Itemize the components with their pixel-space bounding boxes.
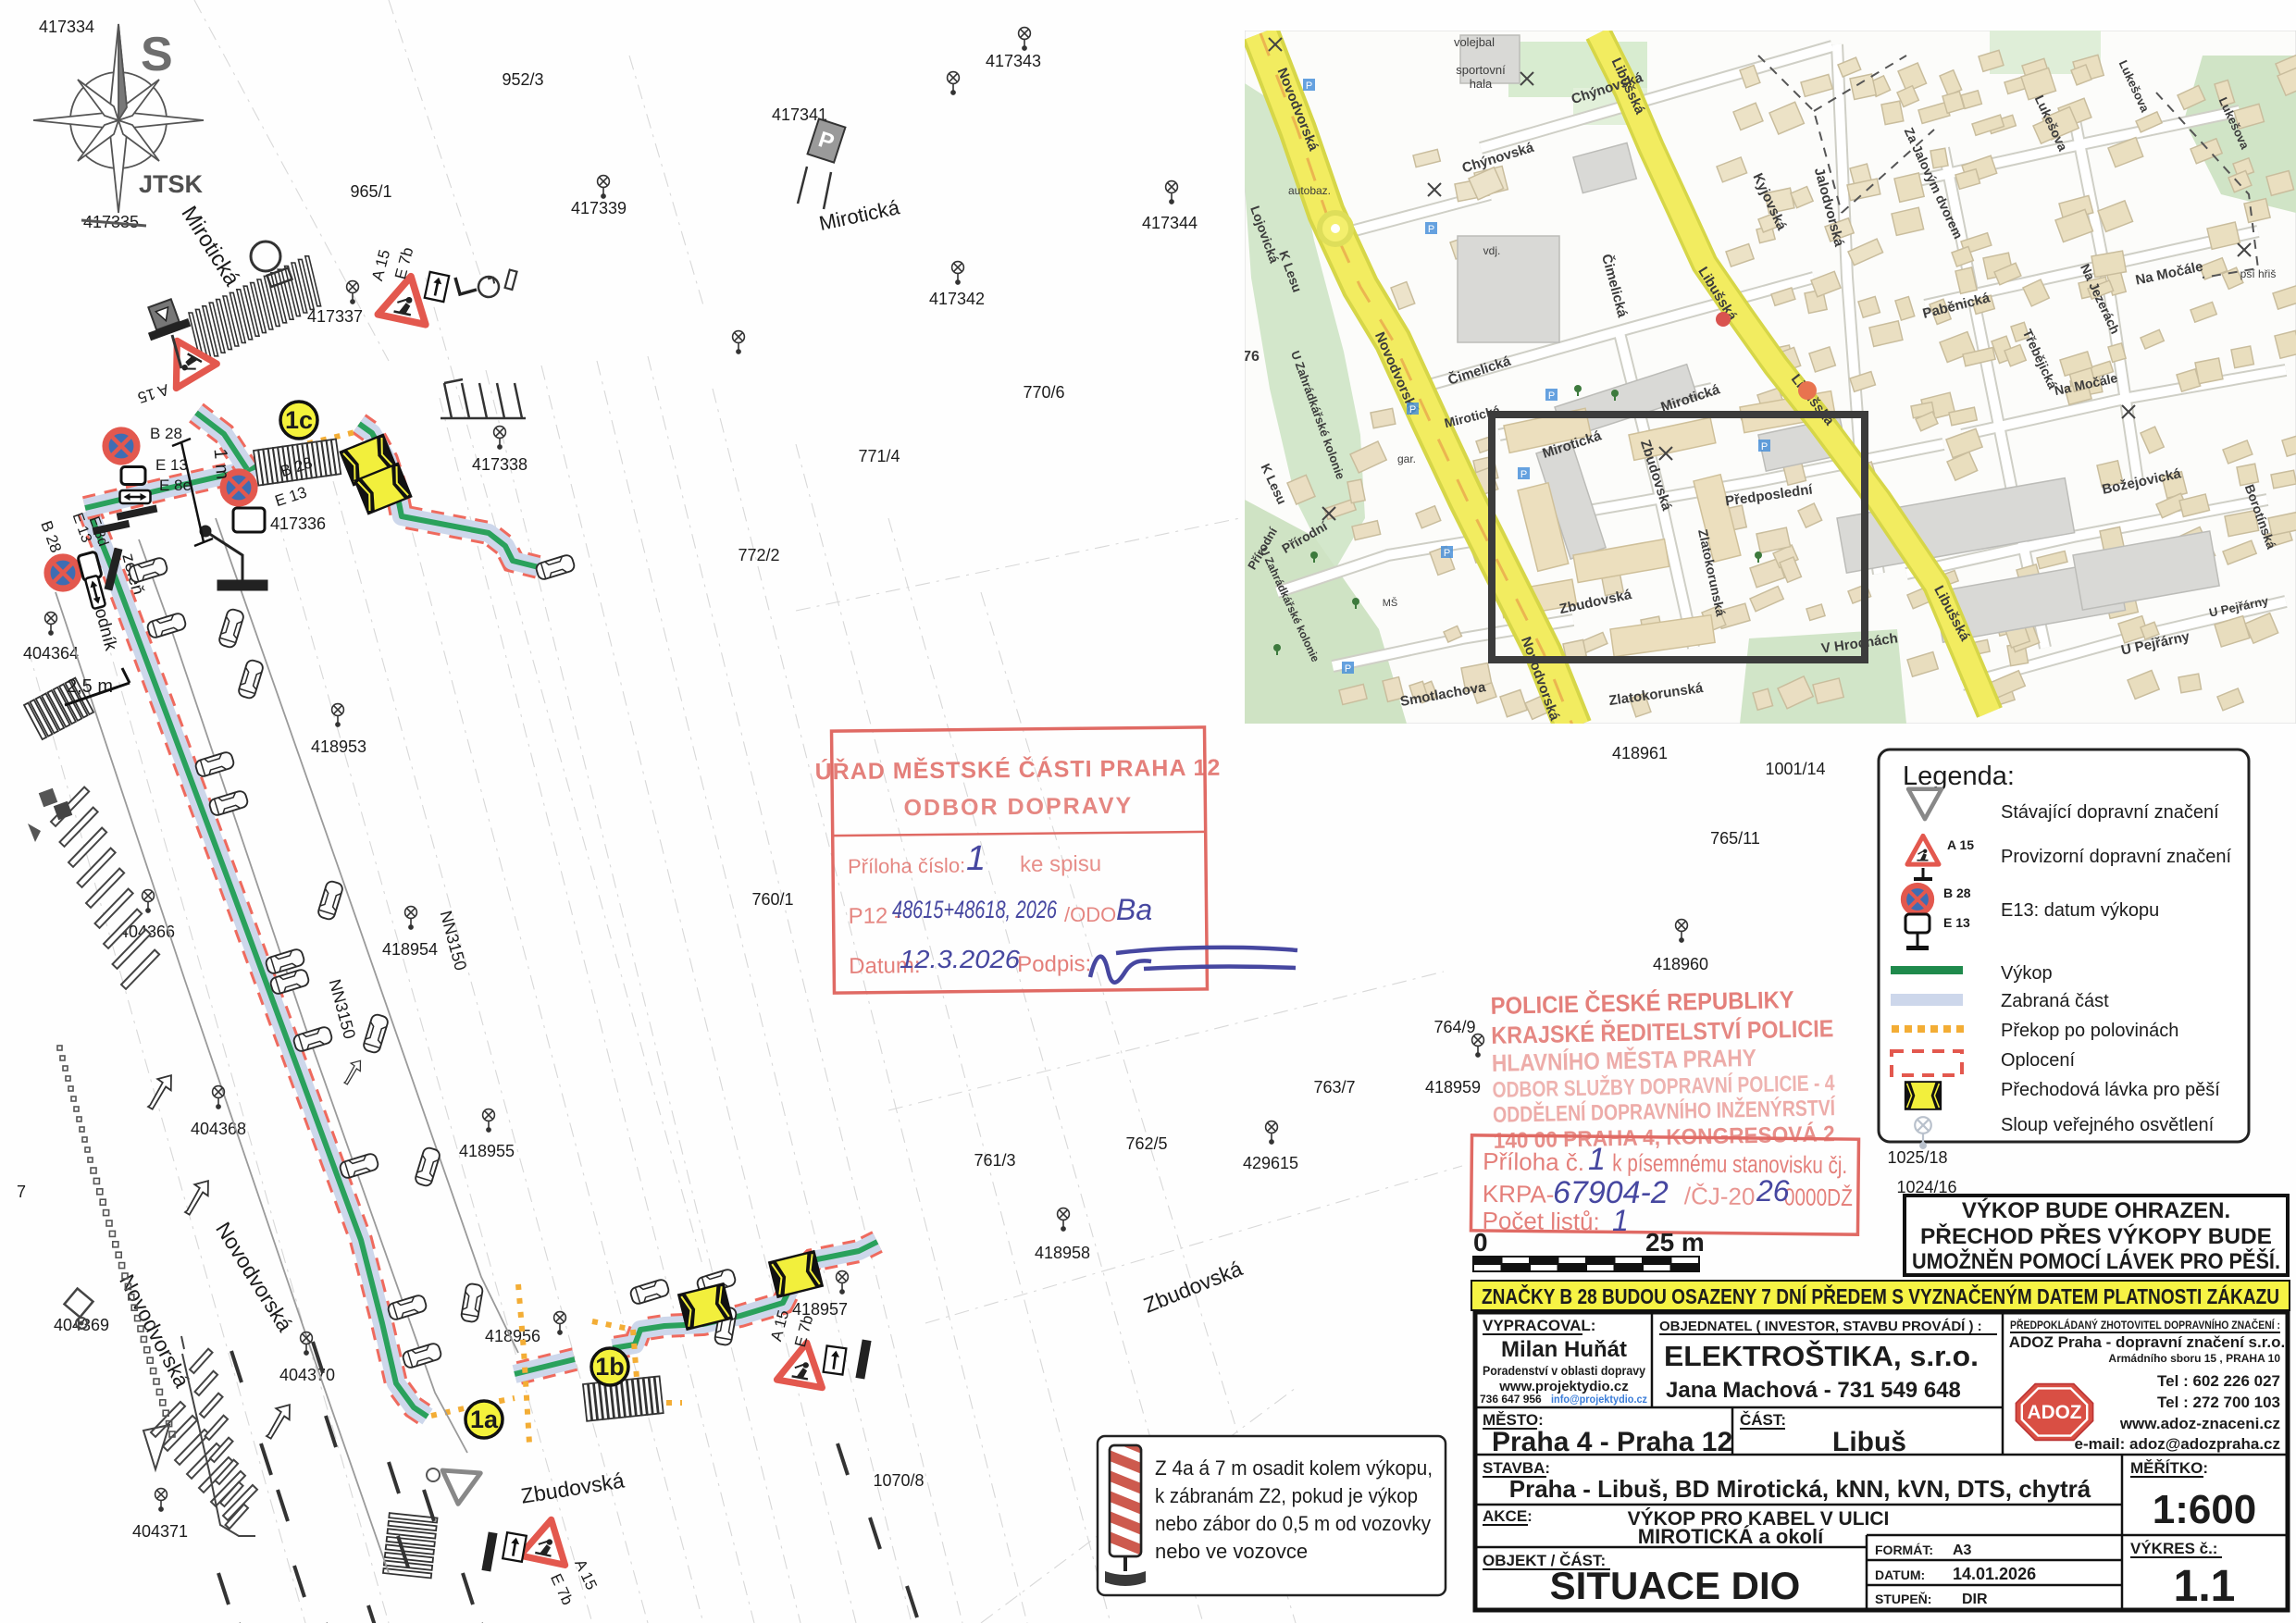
svg-text:Zabraná část: Zabraná část <box>2001 991 2109 1011</box>
svg-text:418954: 418954 <box>382 940 438 959</box>
svg-text:JTSK: JTSK <box>139 170 204 198</box>
svg-text:Armádního sboru 15 , PRAHA 10: Armádního sboru 15 , PRAHA 10 <box>2108 1352 2280 1365</box>
svg-text:417344: 417344 <box>1142 214 1198 232</box>
svg-text:S: S <box>141 28 173 81</box>
svg-text:E 13: E 13 <box>1943 915 1970 930</box>
svg-text:P: P <box>1306 81 1312 92</box>
svg-text:1001/14: 1001/14 <box>1765 760 1825 778</box>
svg-text:1c: 1c <box>285 406 313 434</box>
svg-text:Sloup veřejného osvětlení: Sloup veřejného osvětlení <box>2001 1115 2215 1135</box>
svg-text:Provizorní dopravní značení: Provizorní dopravní značení <box>2001 847 2231 867</box>
svg-text:952/3: 952/3 <box>502 70 543 89</box>
svg-text:ke spisu: ke spisu <box>1020 851 1101 877</box>
svg-text:P: P <box>1345 663 1351 675</box>
svg-text:ODBOR DOPRAVY: ODBOR DOPRAVY <box>903 793 1133 822</box>
svg-text:info@projektydio.cz: info@projektydio.cz <box>1551 1393 1647 1406</box>
svg-text:418961: 418961 <box>1612 744 1668 762</box>
svg-text:Stávající dopravní značení: Stávající dopravní značení <box>2001 802 2219 823</box>
svg-text:1: 1 <box>966 839 986 878</box>
svg-text:P: P <box>1548 390 1555 402</box>
svg-text:MIROTICKÁ a okolí: MIROTICKÁ a okolí <box>1638 1525 1824 1548</box>
svg-text:0: 0 <box>1473 1228 1488 1257</box>
svg-text:ČÁST:: ČÁST: <box>1740 1411 1786 1429</box>
svg-text:Příloha č.: Příloha č. <box>1483 1147 1584 1176</box>
svg-text:12.3.2026: 12.3.2026 <box>900 945 1020 973</box>
svg-text:Milan Huňát: Milan Huňát <box>1501 1337 1627 1362</box>
svg-text:/ODO: /ODO <box>1064 903 1116 926</box>
svg-text:0000DŽ: 0000DŽ <box>1784 1183 1853 1211</box>
svg-text:1: 1 <box>1588 1142 1606 1177</box>
svg-text:Tel : 602 226 027: Tel : 602 226 027 <box>2157 1372 2280 1390</box>
svg-text:ELEKTROŠTIKA, s.r.o.: ELEKTROŠTIKA, s.r.o. <box>1664 1339 1979 1372</box>
svg-text:418953: 418953 <box>311 737 366 756</box>
svg-text:P: P <box>1428 224 1434 235</box>
svg-text:PŘEDPOKLÁDANÝ ZHOTOVITEL DOPR: PŘEDPOKLÁDANÝ ZHOTOVITEL DOPRAVNÍHO ZNAČ… <box>2010 1318 2280 1332</box>
svg-text:404371: 404371 <box>132 1522 188 1541</box>
svg-text:1a: 1a <box>470 1406 499 1433</box>
svg-text:48615+48618, 2026: 48615+48618, 2026 <box>892 896 1058 923</box>
svg-text:hala: hala <box>1470 77 1493 91</box>
svg-text:P: P <box>1409 404 1416 415</box>
svg-text:1:600: 1:600 <box>2153 1487 2257 1532</box>
svg-text:417336: 417336 <box>270 514 326 533</box>
svg-text:ADOZ Praha - dopravní značení: ADOZ Praha - dopravní značení s.r.o. <box>2009 1333 2286 1351</box>
svg-text:14.01.2026: 14.01.2026 <box>1953 1565 2036 1583</box>
svg-text:67904-2: 67904-2 <box>1553 1175 1669 1210</box>
svg-text:e-mail: adoz@adozpraha.cz: e-mail: adoz@adozpraha.cz <box>2074 1435 2280 1453</box>
svg-text:771/4: 771/4 <box>858 447 900 465</box>
svg-text:404370: 404370 <box>279 1366 335 1384</box>
svg-text:MĚŘÍTKO:: MĚŘÍTKO: <box>2130 1459 2208 1477</box>
svg-text:418958: 418958 <box>1035 1244 1090 1262</box>
svg-text:DATUM:: DATUM: <box>1875 1567 1925 1582</box>
svg-text:OBJEDNATEL ( INVESTOR, STAVBU: OBJEDNATEL ( INVESTOR, STAVBU PROVÁDÍ ) … <box>1659 1319 1982 1334</box>
svg-text:vdj.: vdj. <box>1483 244 1501 257</box>
svg-text:1b: 1b <box>595 1353 625 1381</box>
svg-text:psí hřiš: psí hřiš <box>2240 267 2277 280</box>
svg-text:Praha 4 - Praha 12: Praha 4 - Praha 12 <box>1492 1427 1732 1457</box>
svg-text:772/2: 772/2 <box>738 546 779 564</box>
svg-text:A 15: A 15 <box>1947 837 1974 852</box>
svg-text:418955: 418955 <box>459 1142 515 1160</box>
svg-text:Jana Machová - 731 549 648: Jana Machová - 731 549 648 <box>1666 1378 1961 1403</box>
svg-text:Přechodová lávka pro pěší: Přechodová lávka pro pěší <box>2001 1080 2220 1100</box>
svg-text:Oplocení: Oplocení <box>2001 1050 2075 1071</box>
svg-text:Podpis:: Podpis: <box>1017 951 1091 977</box>
svg-text:SITUACE DIO: SITUACE DIO <box>1550 1564 1801 1607</box>
svg-text:HLAVNÍHO MĚSTA PRAHY: HLAVNÍHO MĚSTA PRAHY <box>1492 1044 1757 1077</box>
svg-text:429615: 429615 <box>1243 1154 1298 1172</box>
svg-text:Libuš: Libuš <box>1832 1427 1906 1457</box>
svg-text:770/6: 770/6 <box>1023 383 1064 402</box>
svg-text:sportovní: sportovní <box>1456 63 1506 77</box>
svg-text:KRPA-: KRPA- <box>1483 1180 1555 1208</box>
svg-text:gar.: gar. <box>1397 452 1416 465</box>
svg-text:autobaz.: autobaz. <box>1288 184 1331 197</box>
svg-text:1.1: 1.1 <box>2174 1562 2236 1611</box>
svg-text:ADOZ: ADOZ <box>2028 1402 2082 1423</box>
svg-text:404364: 404364 <box>23 644 79 663</box>
svg-text:E 8e: E 8e <box>159 477 192 494</box>
svg-text:DIR: DIR <box>1962 1592 1988 1607</box>
svg-text:1: 1 <box>1612 1204 1629 1237</box>
svg-text:P: P <box>1444 548 1450 559</box>
svg-text:761/3: 761/3 <box>974 1151 1015 1170</box>
svg-text:418960: 418960 <box>1653 955 1708 973</box>
svg-text:760/1: 760/1 <box>751 890 793 909</box>
svg-text:P: P <box>1761 441 1768 452</box>
svg-text:B 28: B 28 <box>150 425 182 442</box>
svg-text:UMOŽNĚN POMOCÍ LÁVEK PRO P: UMOŽNĚN POMOCÍ LÁVEK PRO PĚŠÍ. <box>1912 1248 2280 1274</box>
svg-text:VYPRACOVAL:: VYPRACOVAL: <box>1483 1317 1595 1334</box>
svg-text:B 28: B 28 <box>1943 886 1971 900</box>
svg-text:Počet listů:: Počet listů: <box>1482 1207 1599 1235</box>
svg-text:26: 26 <box>1756 1174 1790 1208</box>
svg-text:2,5 m: 2,5 m <box>67 676 113 697</box>
svg-text:76: 76 <box>1243 349 1260 365</box>
svg-text:STUPEŇ:: STUPEŇ: <box>1875 1591 1931 1606</box>
svg-text:Příloha číslo:: Příloha číslo: <box>848 854 965 878</box>
svg-text:417337: 417337 <box>307 307 363 326</box>
svg-text:417342: 417342 <box>929 290 985 308</box>
svg-text:25 m: 25 m <box>1645 1228 1705 1257</box>
svg-text:AKCE:: AKCE: <box>1483 1507 1533 1525</box>
svg-text:417334: 417334 <box>39 18 94 36</box>
svg-text:volejbal: volejbal <box>1454 35 1495 49</box>
svg-text:k zábranám Z2, pokud je výkop: k zábranám Z2, pokud je výkop <box>1155 1484 1418 1507</box>
svg-text:765/11: 765/11 <box>1710 829 1760 848</box>
svg-text:762/5: 762/5 <box>1125 1134 1167 1153</box>
svg-text:Překop po polovinách: Překop po polovinách <box>2001 1021 2178 1041</box>
svg-text:E 13: E 13 <box>155 456 188 474</box>
svg-text:1025/18: 1025/18 <box>1887 1148 1947 1167</box>
svg-text:7: 7 <box>17 1183 26 1201</box>
svg-text:Z 4a á 7 m osadit kolem výkopu: Z 4a á 7 m osadit kolem výkopu, <box>1155 1456 1433 1480</box>
svg-text:Ba: Ba <box>1116 893 1152 926</box>
svg-text:Výkop: Výkop <box>2001 963 2053 984</box>
svg-text:VÝKRES č.:: VÝKRES č.: <box>2130 1540 2217 1557</box>
svg-text:417339: 417339 <box>571 199 627 217</box>
svg-text:Legenda:: Legenda: <box>1903 762 2015 791</box>
svg-text:736 647 956: 736 647 956 <box>1480 1393 1542 1406</box>
svg-text:1 m: 1 m <box>210 448 233 480</box>
svg-text:VÝKOP BUDE OHRAZEN.: VÝKOP BUDE OHRAZEN. <box>1962 1197 2230 1223</box>
svg-text:/ČJ-20: /ČJ-20 <box>1684 1182 1756 1210</box>
svg-text:FORMÁT:: FORMÁT: <box>1875 1542 1933 1557</box>
svg-text:MŠ: MŠ <box>1383 597 1398 609</box>
svg-text:764/9: 764/9 <box>1433 1018 1475 1036</box>
svg-text:ZNAČKY B 28 BUDOU OSAZENY: ZNAČKY B 28 BUDOU OSAZENY 7 DNÍ PŘEDEM S… <box>1482 1283 2279 1308</box>
svg-text:ÚŘAD MĚSTSKÉ ČÁSTI PRAHA 12: ÚŘAD MĚSTSKÉ ČÁSTI PRAHA 12 <box>815 753 1222 786</box>
svg-text:P: P <box>1520 469 1527 480</box>
svg-text:Poradenství v oblasti dopravy: Poradenství v oblasti dopravy <box>1483 1364 1645 1378</box>
svg-text:www.adoz-znaceni.cz: www.adoz-znaceni.cz <box>2119 1415 2280 1432</box>
svg-text:nebo zábor do 0,5 m od vozovky: nebo zábor do 0,5 m od vozovky <box>1155 1512 1431 1535</box>
svg-text:E13: datum výkopu: E13: datum výkopu <box>2001 900 2159 921</box>
svg-text:417343: 417343 <box>986 52 1041 70</box>
svg-text:nebo ve vozovce: nebo ve vozovce <box>1155 1540 1308 1563</box>
svg-text:PŘECHOD PŘES VÝKOPY BUDE: PŘECHOD PŘES VÝKOPY BUDE <box>1920 1223 2272 1249</box>
svg-text:763/7: 763/7 <box>1313 1078 1355 1096</box>
svg-text:965/1: 965/1 <box>350 182 391 201</box>
svg-text:Tel : 272 700 103: Tel : 272 700 103 <box>2157 1394 2280 1411</box>
svg-text:A3: A3 <box>1953 1542 1972 1558</box>
svg-text:418959: 418959 <box>1425 1078 1481 1096</box>
svg-text:417338: 417338 <box>472 455 527 474</box>
svg-text:1070/8: 1070/8 <box>873 1471 924 1490</box>
svg-text:Praha - Libuš, BD Mirotická, k: Praha - Libuš, BD Mirotická, kNN, kVN, D… <box>1509 1475 2091 1503</box>
